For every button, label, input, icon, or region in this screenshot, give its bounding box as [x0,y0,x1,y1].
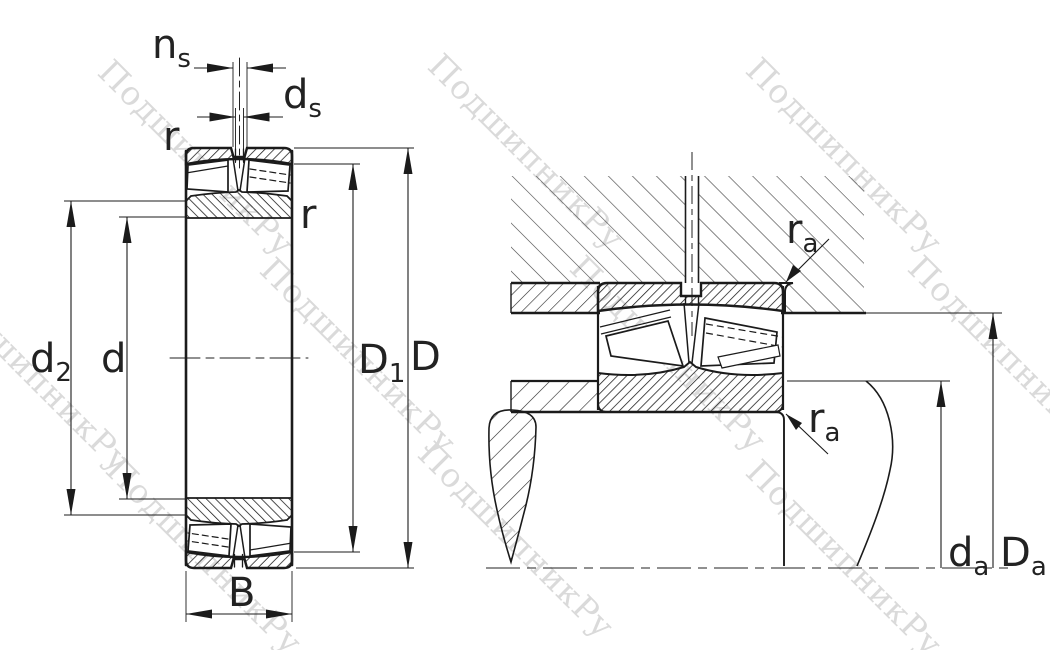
label-r-top-left: r [163,114,180,160]
shaft-shoulder-section [511,381,598,412]
bearing-cross-section-view [170,58,308,568]
bearing-drawing-page: ПодшипникРу ПодшипникРу ПодшипникРу Подш… [0,0,1050,650]
label-da: da [948,530,989,582]
arrowhead [210,113,236,122]
label-Da: Da [1000,530,1047,582]
label-d: d [101,336,126,382]
label-D1: D1 [358,337,405,389]
label-D: D [410,334,441,380]
housing-section [511,176,686,283]
label-d2: d2 [30,336,72,388]
arrowhead [207,64,233,73]
arrowhead [67,201,76,227]
label-r-right: r [300,192,317,238]
housing-cover-section [511,283,598,313]
arrowhead [123,217,132,243]
inner-ring-section [598,362,783,412]
arrowhead [247,64,273,73]
technical-drawing: ns ds r r d2 d D1 D B ra ra da Da [0,0,1050,650]
guide-rib-line [692,303,699,363]
roller-left [187,160,228,192]
bearing-section-half [186,148,292,218]
arrowhead [349,164,358,190]
guide-rib-line [684,303,689,363]
label-ns: ns [152,22,191,74]
arrowhead [123,473,132,499]
arrowhead [937,381,946,407]
shaft-break-section [489,410,536,562]
shaft-step-face [777,412,784,566]
arrowhead [349,526,358,552]
label-ds: ds [283,72,322,124]
mounting-view [486,152,1008,568]
arrowhead [404,542,413,568]
roller-right [247,160,290,192]
arrowhead [404,148,413,174]
outer-ring-section [598,283,783,311]
inner-ring-section [186,190,292,218]
shaft-outline [857,381,893,566]
roller-left [606,321,683,366]
arrowhead [67,489,76,515]
arrowhead [989,313,998,339]
label-ra-bottom: ra [808,396,840,448]
arrowhead [266,610,292,619]
dimension-labels: ns ds r r d2 d D1 D B ra ra da Da [30,22,1047,616]
label-B: B [228,570,255,616]
guide-rib-line [240,158,245,191]
arrowhead [186,610,212,619]
